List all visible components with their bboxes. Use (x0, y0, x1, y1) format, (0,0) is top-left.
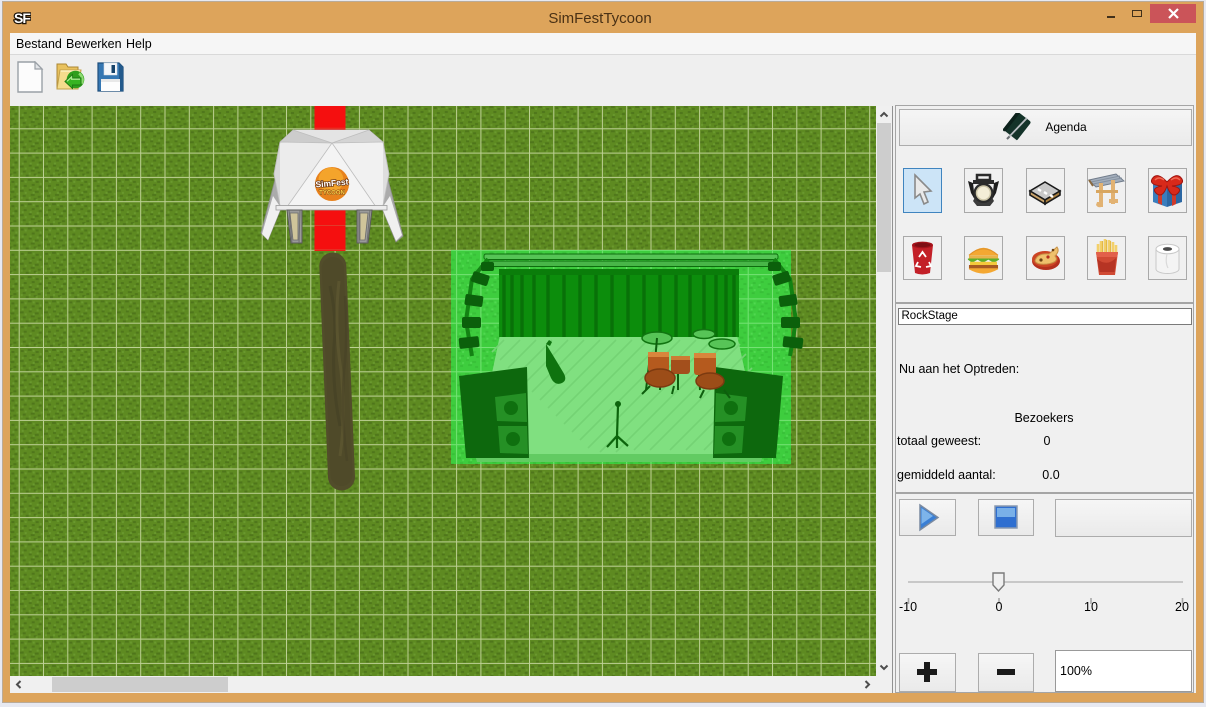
svg-text:TYCOON: TYCOON (319, 191, 345, 197)
svg-text:SF: SF (14, 10, 31, 26)
